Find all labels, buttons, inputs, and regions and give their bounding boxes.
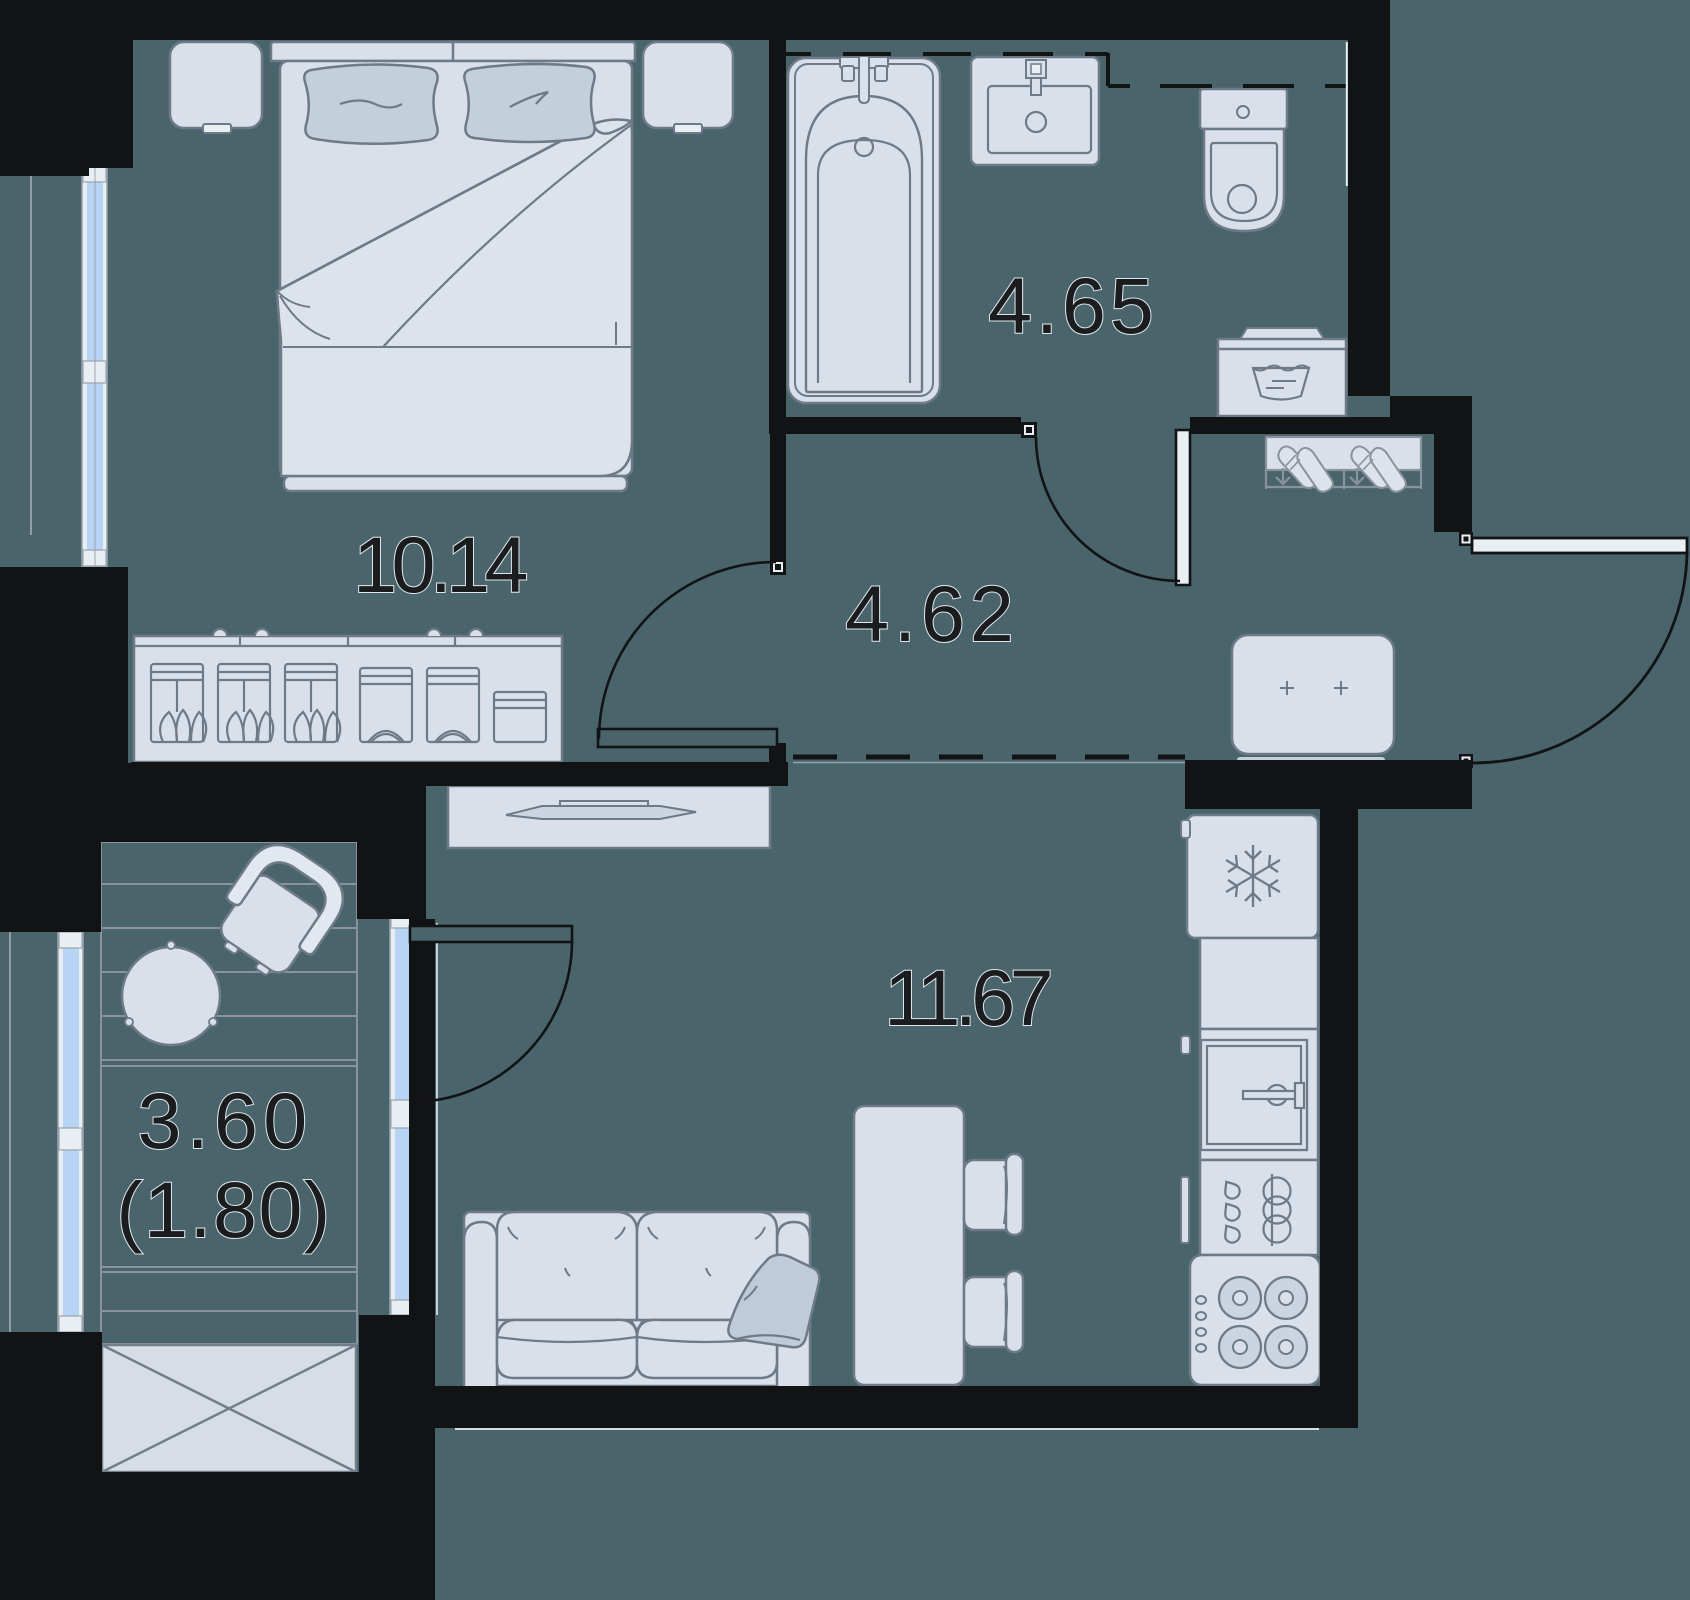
svg-text:4.65: 4.65 [988, 261, 1158, 350]
svg-text:(1.80): (1.80) [116, 1165, 331, 1254]
svg-text:10.14: 10.14 [353, 520, 526, 609]
svg-text:3.60: 3.60 [138, 1076, 313, 1165]
svg-text:4.62: 4.62 [845, 569, 1019, 658]
svg-text:11.67: 11.67 [884, 953, 1049, 1042]
